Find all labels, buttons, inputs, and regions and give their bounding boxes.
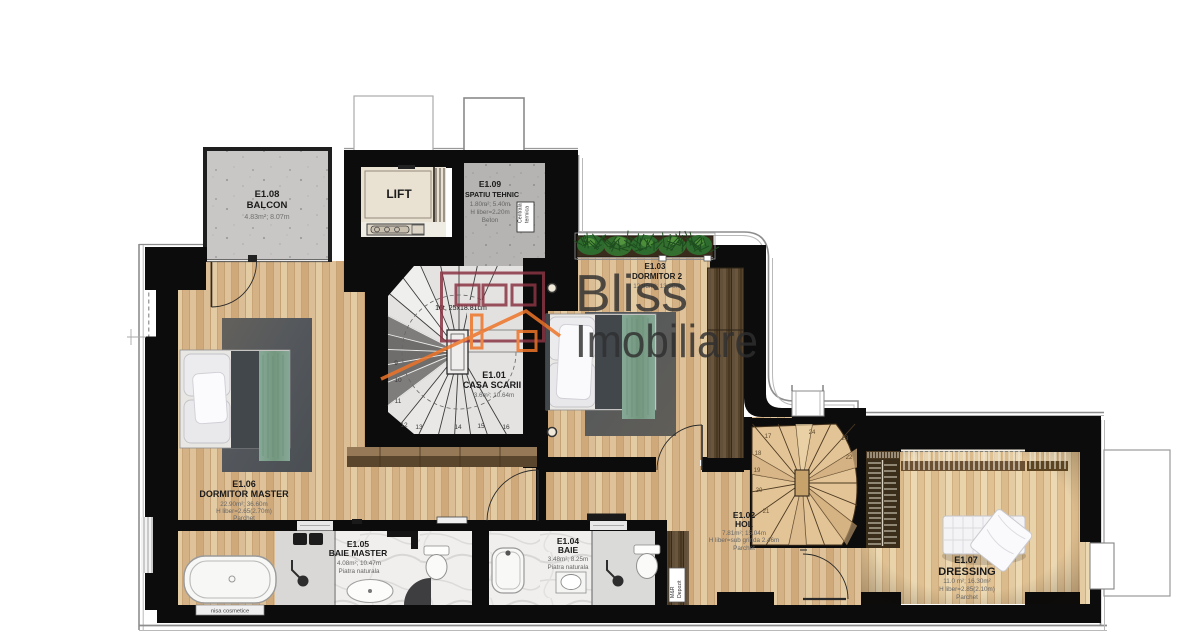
svg-text:Piatra naturala: Piatra naturala: [548, 564, 589, 571]
svg-text:SPATIU TEHNIC: SPATIU TEHNIC: [465, 190, 519, 199]
svg-text:Depozit: Depozit: [677, 580, 683, 598]
svg-text:E1.06: E1.06: [232, 479, 256, 489]
svg-text:4.83m²; 8.07m: 4.83m²; 8.07m: [244, 214, 289, 221]
svg-text:BALCON: BALCON: [247, 200, 288, 211]
svg-text:H liber=2.20m: H liber=2.20m: [470, 209, 509, 216]
svg-text:11.0 m²; 16.30m²: 11.0 m²; 16.30m²: [943, 578, 990, 585]
svg-text:17: 17: [765, 434, 772, 440]
svg-text:Imobiliare: Imobiliare: [575, 315, 758, 367]
svg-text:19: 19: [754, 468, 761, 474]
svg-text:Parchet: Parchet: [733, 545, 755, 552]
svg-text:15: 15: [477, 423, 485, 430]
svg-text:Parchet: Parchet: [233, 515, 255, 522]
svg-text:Piatra naturala: Piatra naturala: [339, 568, 380, 575]
svg-text:23: 23: [842, 436, 849, 442]
svg-text:13: 13: [415, 424, 423, 431]
svg-text:H liber=2.65(2.70m): H liber=2.65(2.70m): [216, 508, 272, 515]
svg-text:20: 20: [756, 488, 763, 494]
svg-text:7.81m²; 15.04m: 7.81m²; 15.04m: [722, 530, 766, 537]
svg-text:24: 24: [809, 430, 816, 436]
svg-text:9: 9: [394, 360, 398, 367]
svg-text:18: 18: [755, 451, 762, 457]
svg-text:10: 10: [394, 377, 402, 384]
svg-text:H liber=sub grinda 2.46m: H liber=sub grinda 2.46m: [709, 537, 780, 544]
svg-text:M&R: M&R: [670, 586, 676, 598]
svg-text:Beton: Beton: [482, 217, 499, 224]
svg-text:1.80m²; 5.40m: 1.80m²; 5.40m: [470, 201, 511, 208]
svg-text:E1.07: E1.07: [954, 555, 978, 565]
svg-text:H liber=2.85(2.10m): H liber=2.85(2.10m): [939, 586, 995, 593]
svg-text:HOL: HOL: [735, 519, 753, 529]
svg-text:22: 22: [846, 455, 853, 461]
svg-text:22.90m²; 36.60m: 22.90m²; 36.60m: [220, 501, 268, 508]
svg-text:CASA SCARII: CASA SCARII: [463, 380, 521, 390]
svg-text:11: 11: [395, 398, 402, 405]
svg-text:LIFT: LIFT: [386, 187, 412, 201]
svg-text:14: 14: [454, 424, 462, 431]
svg-text:3.48m²; 8.25m: 3.48m²; 8.25m: [548, 556, 589, 563]
svg-text:E1.09: E1.09: [479, 179, 501, 189]
svg-text:12: 12: [400, 422, 408, 429]
svg-text:nisa cosmetice: nisa cosmetice: [211, 609, 249, 615]
svg-text:E1.01: E1.01: [482, 370, 506, 380]
svg-text:BAIE MASTER: BAIE MASTER: [329, 548, 388, 558]
svg-text:Centrala: Centrala: [518, 203, 524, 223]
svg-text:4.08m²; 10.47m: 4.08m²; 10.47m: [337, 560, 381, 567]
svg-text:DRESSING: DRESSING: [938, 566, 995, 578]
svg-text:termica: termica: [525, 206, 531, 223]
svg-text:3.6m²; 10.64m: 3.6m²; 10.64m: [474, 392, 515, 399]
svg-text:DORMITOR MASTER: DORMITOR MASTER: [199, 489, 289, 499]
svg-text:Parchet: Parchet: [956, 594, 978, 601]
svg-text:BAIE: BAIE: [558, 545, 579, 555]
svg-text:16: 16: [502, 424, 510, 431]
svg-text:21: 21: [763, 509, 770, 515]
svg-text:E1.08: E1.08: [255, 189, 280, 200]
